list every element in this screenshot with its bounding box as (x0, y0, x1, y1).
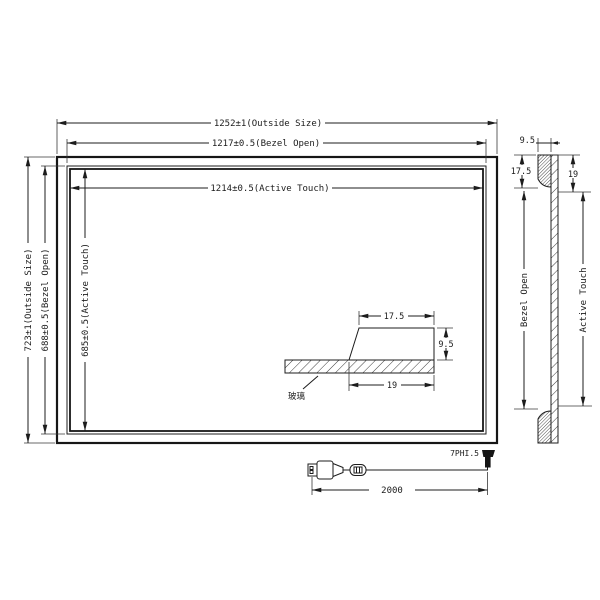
cable-assembly: 7PHI.5 2000 (308, 449, 495, 496)
dim-section-right: 19 (565, 155, 582, 192)
dim-active-height-label: 685±0.5(Active Touch) (81, 243, 91, 357)
board-connector (482, 450, 495, 468)
dim-bezel-height: 688±0.5(Bezel Open) (39, 166, 51, 434)
board-connector-label: 7PHI.5 (450, 449, 479, 458)
bezel-section-bottom (538, 411, 551, 443)
dim-detail-top-label: 17.5 (384, 312, 404, 322)
dim-detail-top: 17.5 (359, 310, 434, 322)
dim-section-bezel-open-label: Bezel Open (520, 273, 530, 327)
dim-detail-bottom-label: 19 (387, 381, 397, 391)
dim-outside-height: 723±1(Outside Size) (22, 157, 34, 443)
section-top-extension (538, 138, 551, 152)
dim-active-width: 1214±0.5(Active Touch) (70, 182, 483, 194)
glass-bar (285, 360, 434, 373)
active-touch-outline (70, 169, 483, 431)
side-section-view: 9.5 17.5 19 Bezel Open (508, 135, 592, 443)
front-view: 1252±1(Outside Size) 1217±0.5(Bezel Open… (22, 117, 497, 443)
bezel-detail-view: 17.5 9.5 19 玻璃 (285, 310, 457, 402)
dim-section-left: 17.5 (508, 155, 535, 188)
dim-section-active-touch: Active Touch (577, 192, 589, 406)
dim-section-active-touch-label: Active Touch (579, 267, 589, 332)
touch-panel-drawing-sheet: 1252±1(Outside Size) 1217±0.5(Bezel Open… (0, 0, 600, 600)
dim-section-bezel-open: Bezel Open (518, 191, 530, 409)
dim-outside-width-label: 1252±1(Outside Size) (214, 119, 322, 129)
cable-run (366, 467, 488, 470)
dim-bezel-width: 1217±0.5(Bezel Open) (67, 137, 486, 149)
technical-drawing: 1252±1(Outside Size) 1217±0.5(Bezel Open… (0, 0, 600, 600)
dim-detail-height: 9.5 (436, 328, 457, 360)
dim-section-width-label: 9.5 (520, 136, 535, 146)
ferrite-bead (350, 465, 366, 476)
dim-active-width-label: 1214±0.5(Active Touch) (210, 184, 329, 194)
dim-outside-width: 1252±1(Outside Size) (57, 117, 497, 129)
dim-detail-bottom: 19 (349, 379, 434, 391)
dim-active-height: 685±0.5(Active Touch) (79, 169, 91, 431)
dim-cable-length: 2000 (312, 484, 488, 496)
glass-leader-line (303, 376, 318, 389)
glass-section (551, 155, 558, 443)
bezel-section-top (538, 155, 551, 187)
outside-size-outline (57, 157, 497, 443)
usb-connector (308, 461, 343, 479)
dim-detail-height-label: 9.5 (438, 340, 453, 350)
bezel-open-outline (67, 166, 486, 434)
dim-outside-height-label: 723±1(Outside Size) (24, 249, 34, 352)
dim-bezel-width-label: 1217±0.5(Bezel Open) (212, 139, 320, 149)
dim-bezel-height-label: 688±0.5(Bezel Open) (41, 249, 51, 352)
dim-section-left-label: 17.5 (511, 167, 531, 177)
dim-cable-length-label: 2000 (381, 486, 403, 496)
dim-section-right-label: 19 (568, 170, 578, 180)
bezel-profile (349, 328, 434, 360)
glass-label: 玻璃 (288, 391, 306, 402)
